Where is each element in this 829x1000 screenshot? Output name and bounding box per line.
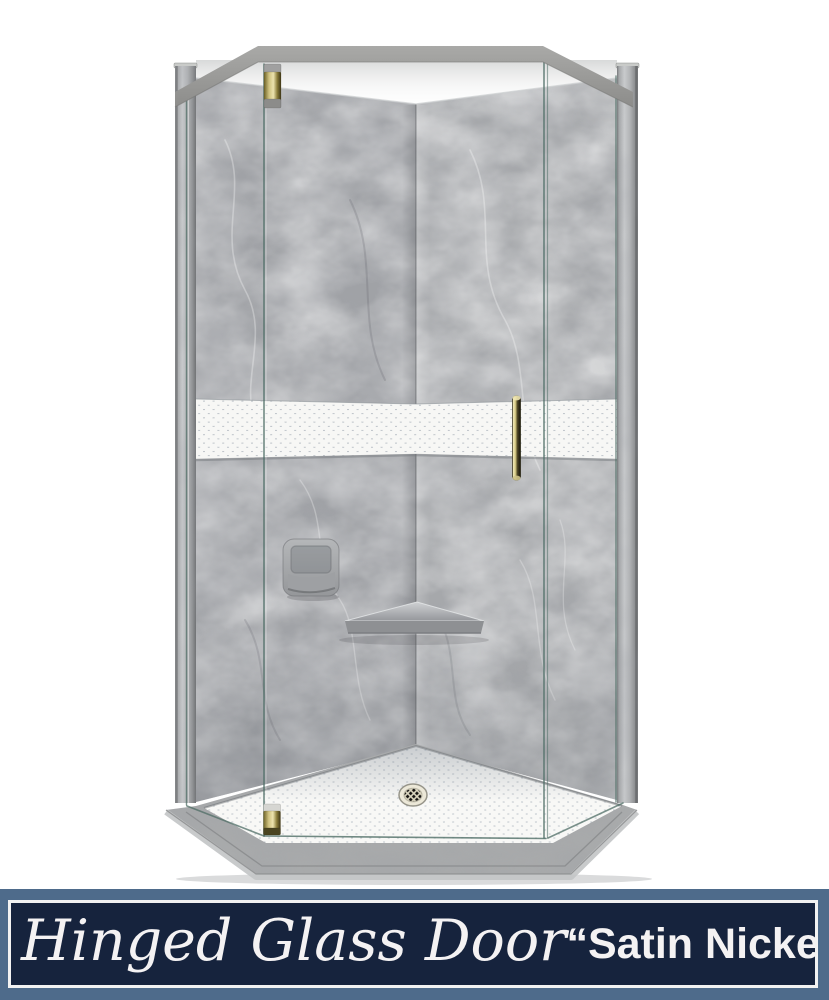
caption-finish-name: “Satin Nickel”	[566, 920, 818, 969]
door-handle	[513, 396, 521, 481]
accent-tile-band	[196, 399, 617, 460]
bottom-hinge	[264, 804, 281, 835]
caption-product-name: Hinged Glass Door	[21, 908, 566, 974]
caption-banner: Hinged Glass Door “Satin Nickel”	[0, 889, 829, 1000]
top-hinge	[264, 64, 281, 108]
shower-product-image	[0, 0, 829, 889]
drain	[399, 784, 427, 806]
soap-dish	[283, 539, 339, 601]
screenshot-root: Hinged Glass Door “Satin Nickel”	[0, 0, 829, 1000]
caption-frame: Hinged Glass Door “Satin Nickel”	[8, 900, 818, 988]
